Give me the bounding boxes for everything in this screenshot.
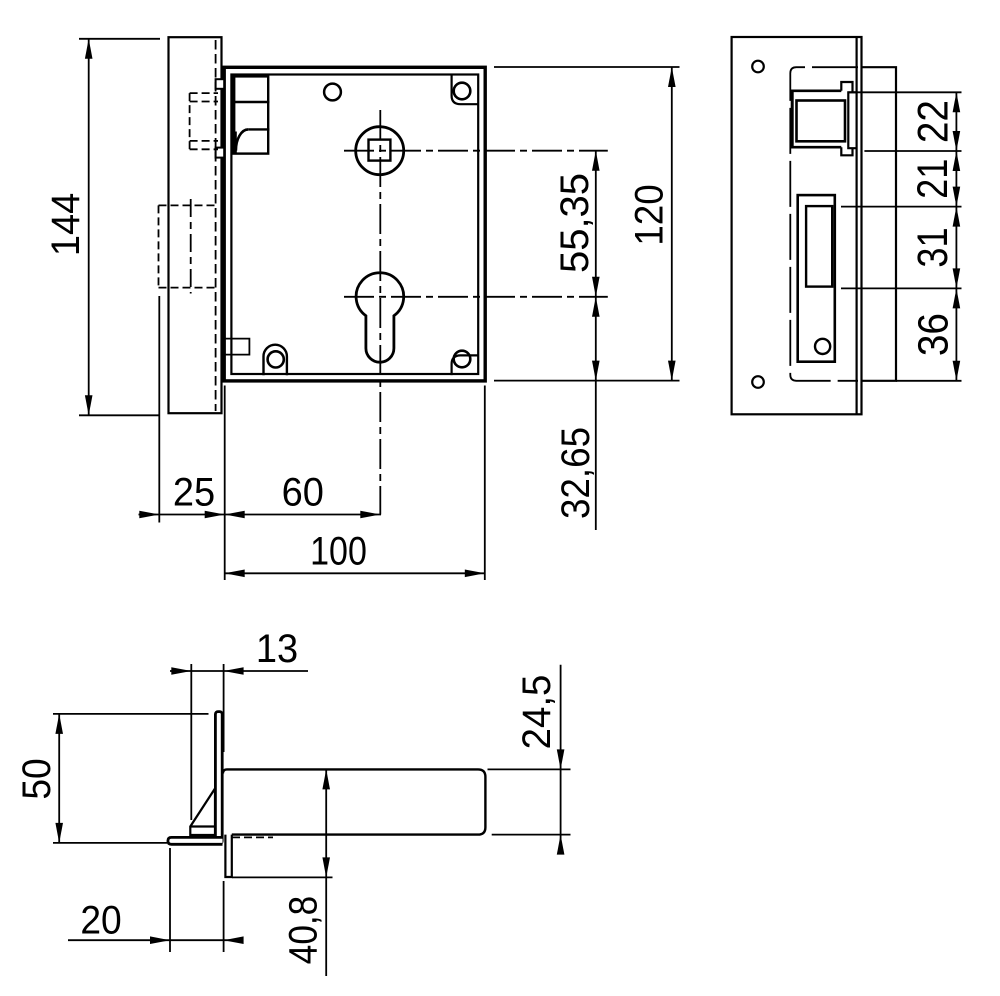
- svg-text:24,5: 24,5: [515, 675, 559, 750]
- svg-text:22: 22: [909, 100, 957, 143]
- svg-text:100: 100: [310, 528, 367, 573]
- svg-text:40,8: 40,8: [280, 896, 325, 964]
- svg-text:31: 31: [909, 227, 957, 267]
- svg-text:25: 25: [173, 471, 215, 515]
- svg-text:55,35: 55,35: [553, 173, 597, 273]
- svg-text:13: 13: [256, 627, 298, 671]
- svg-text:36: 36: [909, 313, 957, 356]
- svg-text:20: 20: [80, 898, 121, 943]
- svg-text:60: 60: [282, 471, 324, 515]
- svg-text:144: 144: [44, 193, 88, 256]
- svg-text:21: 21: [909, 159, 957, 199]
- svg-text:120: 120: [627, 184, 672, 245]
- svg-text:32,65: 32,65: [554, 427, 599, 519]
- svg-text:50: 50: [15, 758, 60, 799]
